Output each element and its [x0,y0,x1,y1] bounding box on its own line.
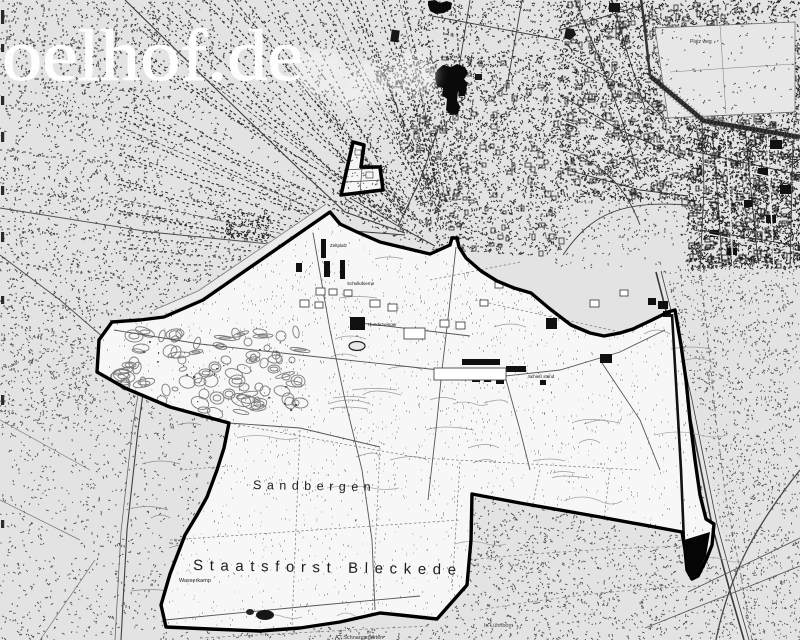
svg-text:Schieß stand: Schieß stand [528,374,555,379]
svg-text:Zeltplatz: Zeltplatz [330,243,348,248]
svg-text:Sandbergen: Sandbergen [253,478,376,494]
svg-text:Hundezwinger: Hundezwinger [368,322,397,327]
svg-text:oelhof.de: oelhof.de [2,15,303,96]
svg-text:Schulkaserne: Schulkaserne [347,281,375,286]
svg-text:Platz weg: Platz weg [690,39,712,45]
svg-text:Wasserkamp: Wasserkamp [179,578,211,584]
svg-text:In Lühnborn: In Lühnborn [484,623,513,629]
svg-text:A.! Schnangsgarten: A.! Schnangsgarten [335,635,383,640]
